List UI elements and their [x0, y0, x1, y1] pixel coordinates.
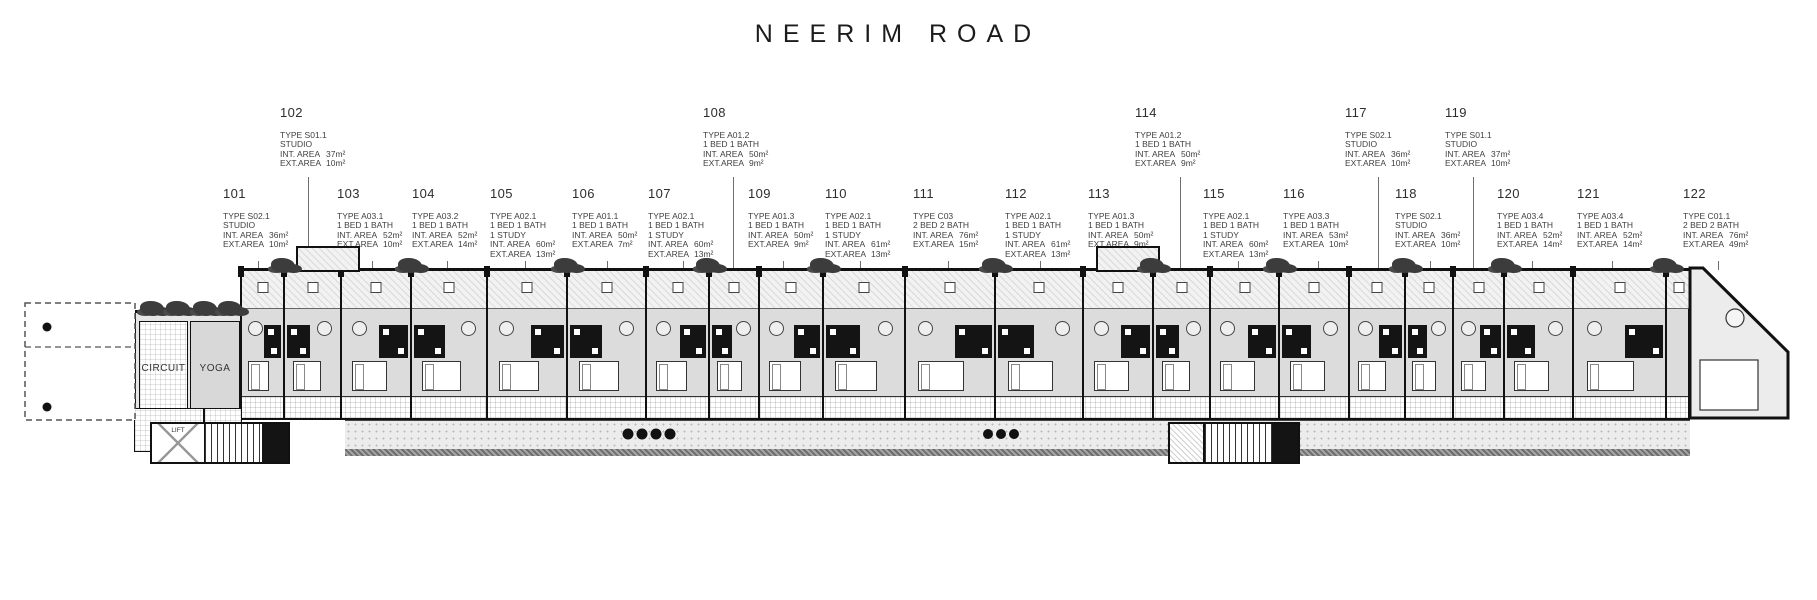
balcony-furniture	[444, 282, 455, 293]
living-area	[242, 309, 283, 396]
living-area	[1454, 309, 1503, 396]
apartment-module	[1665, 271, 1690, 420]
ext-area-row: EXT.AREA10m²	[223, 240, 288, 250]
balcony-furniture	[1309, 282, 1320, 293]
ext-area-row: EXT.AREA9m²	[703, 159, 768, 169]
balcony-furniture	[1424, 282, 1435, 293]
plant-icon	[271, 258, 295, 273]
balcony-furniture	[1614, 282, 1625, 293]
terrace-strip	[345, 420, 1690, 456]
table-icon	[619, 321, 634, 336]
living-area	[1280, 309, 1348, 396]
balcony	[412, 271, 486, 309]
column-tick	[643, 266, 649, 277]
unit-label-105: 105TYPE A02.11 BED 1 BATH1 STUDYINT. ARE…	[490, 189, 555, 259]
bed-icon	[835, 361, 877, 391]
bathroom-pod	[414, 325, 445, 358]
plant-icon	[398, 258, 422, 273]
balcony-furniture	[1239, 282, 1250, 293]
bathroom-pod	[794, 325, 820, 358]
amenity-block: CIRCUIT YOGA	[133, 310, 240, 420]
plant-icon	[1266, 258, 1290, 273]
bed-icon	[1587, 361, 1634, 391]
unit-label-112: 112TYPE A02.11 BED 1 BATH1 STUDYINT. ARE…	[1005, 189, 1070, 259]
unit-label-102: 102TYPE S01.1STUDIOINT. AREA37m²EXT.AREA…	[280, 108, 345, 169]
balcony	[342, 271, 410, 309]
apartment-module	[1152, 271, 1209, 420]
bed-icon	[717, 361, 742, 391]
leader-line	[1718, 261, 1719, 270]
balcony-furniture	[1533, 282, 1544, 293]
apartment-module	[758, 271, 822, 420]
stair-flight	[204, 424, 262, 462]
balcony	[242, 271, 283, 309]
living-area	[1350, 309, 1404, 396]
living-area	[996, 309, 1082, 396]
ext-area-row: EXT.AREA7m²	[572, 240, 637, 250]
table-icon	[1358, 321, 1373, 336]
column-tick	[1346, 266, 1352, 277]
ext-area-row: EXT.AREA10m²	[1395, 240, 1460, 250]
balcony-furniture	[1176, 282, 1187, 293]
lobby-hatch	[1170, 424, 1204, 462]
angled-end-terrace	[1690, 268, 1788, 418]
bed-icon	[248, 361, 269, 391]
table-icon	[352, 321, 367, 336]
apartment-module	[708, 271, 758, 420]
balcony	[647, 271, 708, 309]
balcony	[1350, 271, 1404, 309]
room-circuit: CIRCUIT	[139, 321, 188, 416]
plant-icon	[554, 258, 578, 273]
balcony-furniture	[257, 282, 268, 293]
bed-icon	[918, 361, 964, 391]
bathroom-pod	[1379, 325, 1402, 358]
living-area	[1574, 309, 1665, 396]
unit-number: 113	[1088, 189, 1153, 199]
bathroom-pod	[379, 325, 408, 358]
balcony	[760, 271, 822, 309]
table-icon	[317, 321, 332, 336]
unit-number: 105	[490, 189, 555, 199]
table-icon	[1323, 321, 1338, 336]
unit-number: 103	[337, 189, 402, 199]
balcony	[824, 271, 904, 309]
balcony	[1154, 271, 1209, 309]
balcony-furniture	[786, 282, 797, 293]
apartment-module	[645, 271, 708, 420]
ext-area-row: EXT.AREA13m²	[1005, 250, 1070, 260]
unit-number: 121	[1577, 189, 1642, 199]
table-icon	[656, 321, 671, 336]
unit-label-119: 119TYPE S01.1STUDIOINT. AREA37m²EXT.AREA…	[1445, 108, 1510, 169]
balcony-furniture	[945, 282, 956, 293]
stair-flight	[1204, 424, 1272, 462]
balcony	[1505, 271, 1572, 309]
table-icon	[918, 321, 933, 336]
lift-shaft: LIFT	[152, 424, 204, 462]
floor-plan-sheet: NEERIM ROAD 102TYPE S01.1STUDIOINT. AREA…	[0, 0, 1817, 600]
balcony	[1280, 271, 1348, 309]
bed-icon	[656, 361, 688, 391]
balcony-furniture	[672, 282, 683, 293]
bathroom-pod	[1625, 325, 1663, 358]
balcony	[1084, 271, 1152, 309]
balcony	[1211, 271, 1278, 309]
unit-number: 106	[572, 189, 637, 199]
unit-label-113: 113TYPE A01.31 BED 1 BATHINT. AREA50m²EX…	[1088, 189, 1153, 250]
ext-area-row: EXT.AREA15m²	[913, 240, 978, 250]
bed-icon	[1461, 361, 1486, 391]
balcony-furniture	[601, 282, 612, 293]
balcony	[1454, 271, 1503, 309]
unit-label-116: 116TYPE A03.31 BED 1 BATHINT. AREA53m²EX…	[1283, 189, 1348, 250]
bathroom-pod	[287, 325, 310, 358]
unit-label-122: 122TYPE C01.12 BED 2 BATHINT. AREA76m²EX…	[1683, 189, 1748, 250]
apartment-module	[822, 271, 904, 420]
apartment-module	[240, 271, 283, 420]
end-room	[1700, 360, 1758, 410]
plant-icon	[810, 258, 834, 273]
living-area	[647, 309, 708, 396]
living-area	[824, 309, 904, 396]
leader-line	[1378, 177, 1379, 268]
ext-area-row: EXT.AREA10m²	[1445, 159, 1510, 169]
protruding-balcony	[296, 246, 360, 272]
apartment-module	[1082, 271, 1152, 420]
ext-area-row: EXT.AREA49m²	[1683, 240, 1748, 250]
bathroom-pod	[1408, 325, 1427, 358]
ext-area-row: EXT.AREA14m²	[1577, 240, 1642, 250]
unit-label-121: 121TYPE A03.41 BED 1 BATHINT. AREA52m²EX…	[1577, 189, 1642, 250]
balcony	[710, 271, 758, 309]
bathroom-pod	[955, 325, 992, 358]
apartment-module	[1278, 271, 1348, 420]
unit-number: 111	[913, 189, 978, 199]
terrace-table	[1726, 309, 1744, 327]
balcony	[1667, 271, 1690, 309]
lift-stair-core-left: LIFT	[150, 422, 290, 464]
column-dot	[43, 323, 52, 332]
bathroom-pod	[826, 325, 860, 358]
unit-number: 107	[648, 189, 713, 199]
plant-icon	[166, 301, 190, 316]
lift-stair-core-right	[1168, 422, 1300, 464]
table-icon	[1055, 321, 1070, 336]
ext-area-row: EXT.AREA10m²	[1345, 159, 1410, 169]
bed-icon	[1220, 361, 1255, 391]
balcony	[996, 271, 1082, 309]
table-icon	[878, 321, 893, 336]
plant-icon	[696, 258, 720, 273]
unit-label-118: 118TYPE S02.1STUDIOINT. AREA36m²EXT.AREA…	[1395, 189, 1460, 250]
balcony-furniture	[1372, 282, 1383, 293]
unit-label-104: 104TYPE A03.21 BED 1 BATHINT. AREA52m²EX…	[412, 189, 477, 250]
column-tick	[756, 266, 762, 277]
balcony	[1574, 271, 1665, 309]
living-area	[906, 309, 994, 396]
bed-icon	[1290, 361, 1325, 391]
apartment-module	[1503, 271, 1572, 420]
unit-label-101: 101TYPE S02.1STUDIOINT. AREA36m²EXT.AREA…	[223, 189, 288, 250]
unit-label-106: 106TYPE A01.11 BED 1 BATHINT. AREA50m²EX…	[572, 189, 637, 250]
bathroom-pod	[570, 325, 602, 358]
table-icon	[1461, 321, 1476, 336]
table-icon	[1587, 321, 1602, 336]
living-area	[342, 309, 410, 396]
bathroom-pod	[531, 325, 564, 358]
column-tick	[902, 266, 908, 277]
balcony-furniture	[307, 282, 318, 293]
unit-label-108: 108TYPE A01.21 BED 1 BATHINT. AREA50m²EX…	[703, 108, 768, 169]
building-plan	[240, 268, 1690, 420]
apartment-module	[994, 271, 1082, 420]
unit-number: 120	[1497, 189, 1562, 199]
apartment-module	[410, 271, 486, 420]
balcony	[568, 271, 645, 309]
bed-icon	[1094, 361, 1129, 391]
ext-area-row: EXT.AREA14m²	[1497, 240, 1562, 250]
unit-number: 104	[412, 189, 477, 199]
plant-icon	[982, 258, 1006, 273]
plant-icon	[1491, 258, 1515, 273]
column-tick	[484, 266, 490, 277]
unit-number: 102	[280, 108, 345, 118]
balcony-furniture	[1473, 282, 1484, 293]
bed-icon	[293, 361, 322, 391]
unit-number: 116	[1283, 189, 1348, 199]
apartment-module	[283, 271, 340, 420]
unit-number: 115	[1203, 189, 1268, 199]
living-area	[488, 309, 566, 396]
bed-icon	[769, 361, 801, 391]
plant-icon	[193, 301, 217, 316]
plant-icon	[1392, 258, 1416, 273]
living-area	[1211, 309, 1278, 396]
balcony-furniture	[1034, 282, 1045, 293]
bed-icon	[1358, 361, 1386, 391]
plant-icon	[1140, 258, 1164, 273]
unit-number: 112	[1005, 189, 1070, 199]
table-icon	[1186, 321, 1201, 336]
table-icon	[248, 321, 263, 336]
unit-label-120: 120TYPE A03.41 BED 1 BATHINT. AREA52m²EX…	[1497, 189, 1562, 250]
unit-label-114: 114TYPE A01.21 BED 1 BATHINT. AREA50m²EX…	[1135, 108, 1200, 169]
unit-number: 117	[1345, 108, 1410, 118]
living-area	[760, 309, 822, 396]
table-icon	[1094, 321, 1109, 336]
dashed-boundary	[25, 303, 135, 420]
unit-label-111: 111TYPE C032 BED 2 BATHINT. AREA76m²EXT.…	[913, 189, 978, 250]
bed-icon	[1412, 361, 1436, 391]
unit-label-107: 107TYPE A02.11 BED 1 BATH1 STUDYINT. ARE…	[648, 189, 713, 259]
apartment-module	[486, 271, 566, 420]
balcony-furniture	[729, 282, 740, 293]
bathroom-pod	[1248, 325, 1276, 358]
balcony-furniture	[1673, 282, 1684, 293]
table-icon	[769, 321, 784, 336]
bed-icon	[352, 361, 387, 391]
table-icon	[461, 321, 476, 336]
living-area	[568, 309, 645, 396]
leader-line	[733, 177, 734, 268]
bathroom-pod	[680, 325, 706, 358]
column-tick	[238, 266, 244, 277]
living-area	[1084, 309, 1152, 396]
bathroom-pod	[998, 325, 1034, 358]
table-icon	[1548, 321, 1563, 336]
apartment-module	[1209, 271, 1278, 420]
page-title: NEERIM ROAD	[755, 20, 1041, 49]
bathroom-pod	[264, 325, 281, 358]
bathroom-pod	[1156, 325, 1179, 358]
living-area	[1406, 309, 1452, 396]
balcony	[285, 271, 340, 309]
bathroom-pod	[1480, 325, 1501, 358]
table-icon	[1220, 321, 1235, 336]
unit-number: 114	[1135, 108, 1200, 118]
balcony-furniture	[1113, 282, 1124, 293]
column-tick	[1450, 266, 1456, 277]
bathroom-pod	[1507, 325, 1535, 358]
bed-icon	[422, 361, 460, 391]
apartment-module	[1452, 271, 1503, 420]
balcony-furniture	[522, 282, 533, 293]
ext-area-row: EXT.AREA10m²	[1283, 240, 1348, 250]
balcony-furniture	[859, 282, 870, 293]
unit-number: 122	[1683, 189, 1748, 199]
ext-area-row: EXT.AREA13m²	[490, 250, 555, 260]
unit-label-103: 103TYPE A03.11 BED 1 BATHINT. AREA52m²EX…	[337, 189, 402, 250]
plant-icon	[140, 301, 164, 316]
bed-icon	[1514, 361, 1549, 391]
unit-number: 118	[1395, 189, 1460, 199]
living-area	[1505, 309, 1572, 396]
leader-line	[1180, 177, 1181, 268]
apartment-module	[1404, 271, 1452, 420]
room-yoga: YOGA	[190, 321, 240, 416]
apartment-module	[1348, 271, 1404, 420]
plant-icon	[1653, 258, 1677, 273]
living-area	[1154, 309, 1209, 396]
table-icon	[736, 321, 751, 336]
bathroom-pod	[1121, 325, 1150, 358]
table-icon	[1431, 321, 1446, 336]
bed-icon	[1162, 361, 1191, 391]
service-shaft	[262, 424, 288, 462]
unit-number: 110	[825, 189, 890, 199]
apartment-module	[904, 271, 994, 420]
bed-icon	[579, 361, 619, 391]
unit-label-109: 109TYPE A01.31 BED 1 BATHINT. AREA50m²EX…	[748, 189, 813, 250]
apartment-module	[566, 271, 645, 420]
unit-number: 119	[1445, 108, 1510, 118]
ext-area-row: EXT.AREA9m²	[1135, 159, 1200, 169]
unit-number: 108	[703, 108, 768, 118]
bathroom-pod	[712, 325, 732, 358]
table-icon	[499, 321, 514, 336]
balcony-furniture	[371, 282, 382, 293]
apartment-module	[340, 271, 410, 420]
column-tick	[1080, 266, 1086, 277]
leader-line	[1473, 177, 1474, 268]
column-tick	[1570, 266, 1576, 277]
ext-area-row: EXT.AREA14m²	[412, 240, 477, 250]
ext-area-row: EXT.AREA10m²	[280, 159, 345, 169]
column-tick	[1207, 266, 1213, 277]
balcony	[906, 271, 994, 309]
bed-icon	[499, 361, 540, 391]
ext-area-row: EXT.AREA13m²	[825, 250, 890, 260]
bed-icon	[1008, 361, 1053, 391]
unit-label-115: 115TYPE A02.11 BED 1 BATH1 STUDYINT. ARE…	[1203, 189, 1268, 259]
apartment-module	[1572, 271, 1665, 420]
living-area	[285, 309, 340, 396]
service-shaft	[1272, 424, 1298, 462]
balcony	[1406, 271, 1452, 309]
plant-icon	[218, 301, 242, 316]
unit-number: 109	[748, 189, 813, 199]
living-area	[710, 309, 758, 396]
living-area	[412, 309, 486, 396]
unit-label-117: 117TYPE S02.1STUDIOINT. AREA36m²EXT.AREA…	[1345, 108, 1410, 169]
unit-number: 101	[223, 189, 288, 199]
column-dot	[43, 403, 52, 412]
unit-label-110: 110TYPE A02.11 BED 1 BATH1 STUDYINT. ARE…	[825, 189, 890, 259]
balcony	[488, 271, 566, 309]
ext-area-row: EXT.AREA9m²	[748, 240, 813, 250]
bathroom-pod	[1282, 325, 1311, 358]
ext-area-row: EXT.AREA13m²	[1203, 250, 1268, 260]
